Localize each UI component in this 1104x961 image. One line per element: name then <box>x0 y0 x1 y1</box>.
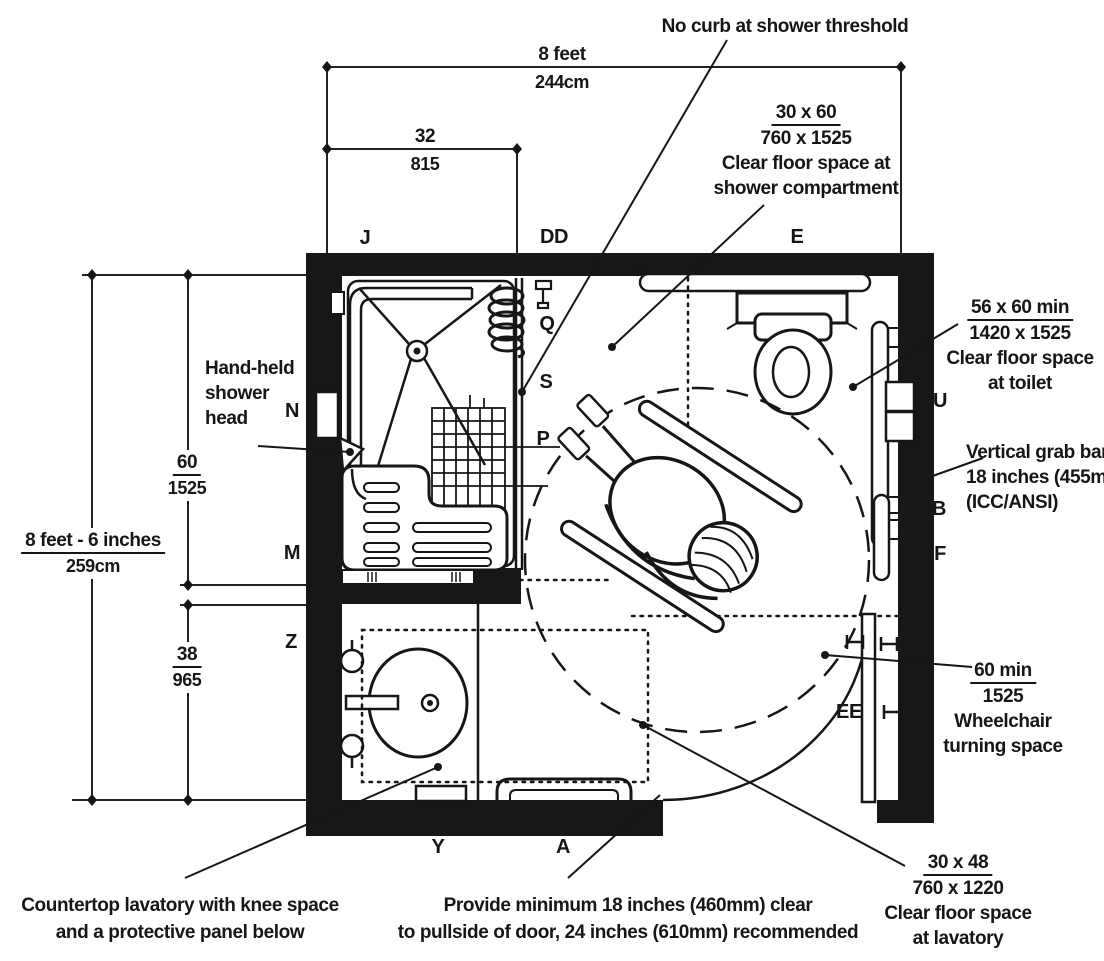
key-label-q: Q <box>539 313 554 335</box>
dim-shower-depth-primary: 60 <box>173 451 201 476</box>
annotation-hand-shower-line3: head <box>205 406 294 431</box>
annotation-door-line2: to pullside of door, 24 inches (610mm) r… <box>398 919 858 946</box>
annotation-countertop: Countertop lavatory with knee space and … <box>21 892 339 946</box>
wall-recess <box>316 392 338 438</box>
annotation-lavatory-clear-line1: 30 x 48 <box>924 851 993 876</box>
dim-vanity-depth: 38 965 <box>169 642 206 693</box>
shower-threshold-strip <box>342 570 474 584</box>
annotation-toilet-clear-line2: 1420 x 1525 <box>946 321 1093 346</box>
annotation-lavatory-clear: 30 x 48 760 x 1220 Clear floor space at … <box>884 850 1031 951</box>
dim-shower-depth: 60 1525 <box>164 450 210 501</box>
annotation-toilet-clear: 56 x 60 min 1420 x 1525 Clear floor spac… <box>946 295 1093 396</box>
annotation-turning-space: 60 min 1525 Wheelchair turning space <box>943 658 1062 759</box>
key-label-b: B <box>932 498 946 520</box>
annotation-grab-bar-line2: 18 inches (455mm) <box>966 465 1104 490</box>
dim-room-depth-primary: 8 feet - 6 inches <box>21 529 165 554</box>
annotation-shower-clear-line2: 760 x 1525 <box>714 126 899 151</box>
annotation-hand-shower-line1: Hand-held <box>205 356 294 381</box>
key-label-dd: DD <box>540 226 568 248</box>
dim-room-depth: 8 feet - 6 inches 259cm <box>17 528 169 579</box>
annotation-toilet-clear-line1: 56 x 60 min <box>967 296 1073 321</box>
annotation-lavatory-clear-line4: at lavatory <box>884 926 1031 951</box>
dim-vanity-depth-secondary: 965 <box>169 668 206 693</box>
annotation-hand-shower: Hand-held shower head <box>205 356 294 431</box>
annotation-vertical-grab-bar: Vertical grab bar 18 inches (455mm) (ICC… <box>966 440 1104 515</box>
annotation-lavatory-clear-line2: 760 x 1220 <box>884 876 1031 901</box>
annotation-door-clearance: Provide minimum 18 inches (460mm) clear … <box>398 892 858 946</box>
wheelchair-user <box>514 369 804 634</box>
dim-vanity-depth-primary: 38 <box>173 643 201 668</box>
annotation-turning-line4: turning space <box>943 734 1062 759</box>
lavatory <box>341 604 631 801</box>
annotation-turning-line2: 1525 <box>943 684 1062 709</box>
annotation-turning-line3: Wheelchair <box>943 709 1062 734</box>
annotation-turning-line1: 60 min <box>970 659 1036 684</box>
annotation-toilet-clear-line3: Clear floor space <box>946 346 1093 371</box>
accessible-bathroom-floor-plan: 8 feet 244cm 32 815 8 feet - 6 inches 25… <box>0 0 1104 961</box>
shower-curtain <box>489 288 524 357</box>
key-label-a: A <box>556 836 570 858</box>
annotation-grab-bar-line3: (ICC/ANSI) <box>966 490 1104 515</box>
key-label-s: S <box>540 371 553 393</box>
key-label-n: N <box>285 400 299 422</box>
annotation-toilet-clear-line4: at toilet <box>946 371 1093 396</box>
door <box>663 614 900 802</box>
dim-shower-depth-secondary: 1525 <box>164 476 210 501</box>
toilet-paper-dispenser <box>886 382 914 441</box>
shower-seat <box>342 466 507 570</box>
annotation-countertop-line2: and a protective panel below <box>21 919 339 946</box>
annotation-no-curb: No curb at shower threshold <box>662 14 909 39</box>
annotation-countertop-line1: Countertop lavatory with knee space <box>21 892 339 919</box>
wheelchair-footrest <box>557 427 590 461</box>
shower-threshold-line <box>516 278 522 570</box>
annotation-shower-clear-line4: shower compartment <box>714 176 899 201</box>
key-label-j: J <box>360 227 371 249</box>
annotation-shower-clear-line1: 30 x 60 <box>772 101 841 126</box>
dim-room-width-secondary: 244cm <box>535 70 589 95</box>
shower-rack <box>432 395 560 508</box>
dim-room-width-primary: 8 feet <box>538 42 585 67</box>
key-label-p: P <box>537 428 550 450</box>
annotation-lavatory-clear-line3: Clear floor space <box>884 901 1031 926</box>
annotation-shower-clear: 30 x 60 760 x 1525 Clear floor space at … <box>714 100 899 201</box>
dim-shower-width-secondary: 815 <box>411 152 440 177</box>
key-label-e: E <box>791 226 804 248</box>
robe-hook <box>536 281 551 308</box>
key-label-z: Z <box>285 631 297 653</box>
dim-shower-width-primary: 32 <box>415 124 435 149</box>
shower-compartment <box>316 278 560 584</box>
key-label-u: U <box>933 390 947 412</box>
key-label-f: F <box>934 543 946 565</box>
wheelchair-footrest <box>576 394 609 428</box>
key-label-ee: EE <box>836 701 862 723</box>
annotation-door-line1: Provide minimum 18 inches (460mm) clear <box>398 892 858 919</box>
key-label-y: Y <box>432 836 445 858</box>
dim-room-depth-secondary: 259cm <box>17 554 169 579</box>
key-label-m: M <box>284 542 300 564</box>
annotation-shower-clear-line3: Clear floor space at <box>714 151 899 176</box>
wall-niche <box>416 786 466 801</box>
annotation-grab-bar-line1: Vertical grab bar <box>966 440 1104 465</box>
annotation-hand-shower-line2: shower <box>205 381 294 406</box>
